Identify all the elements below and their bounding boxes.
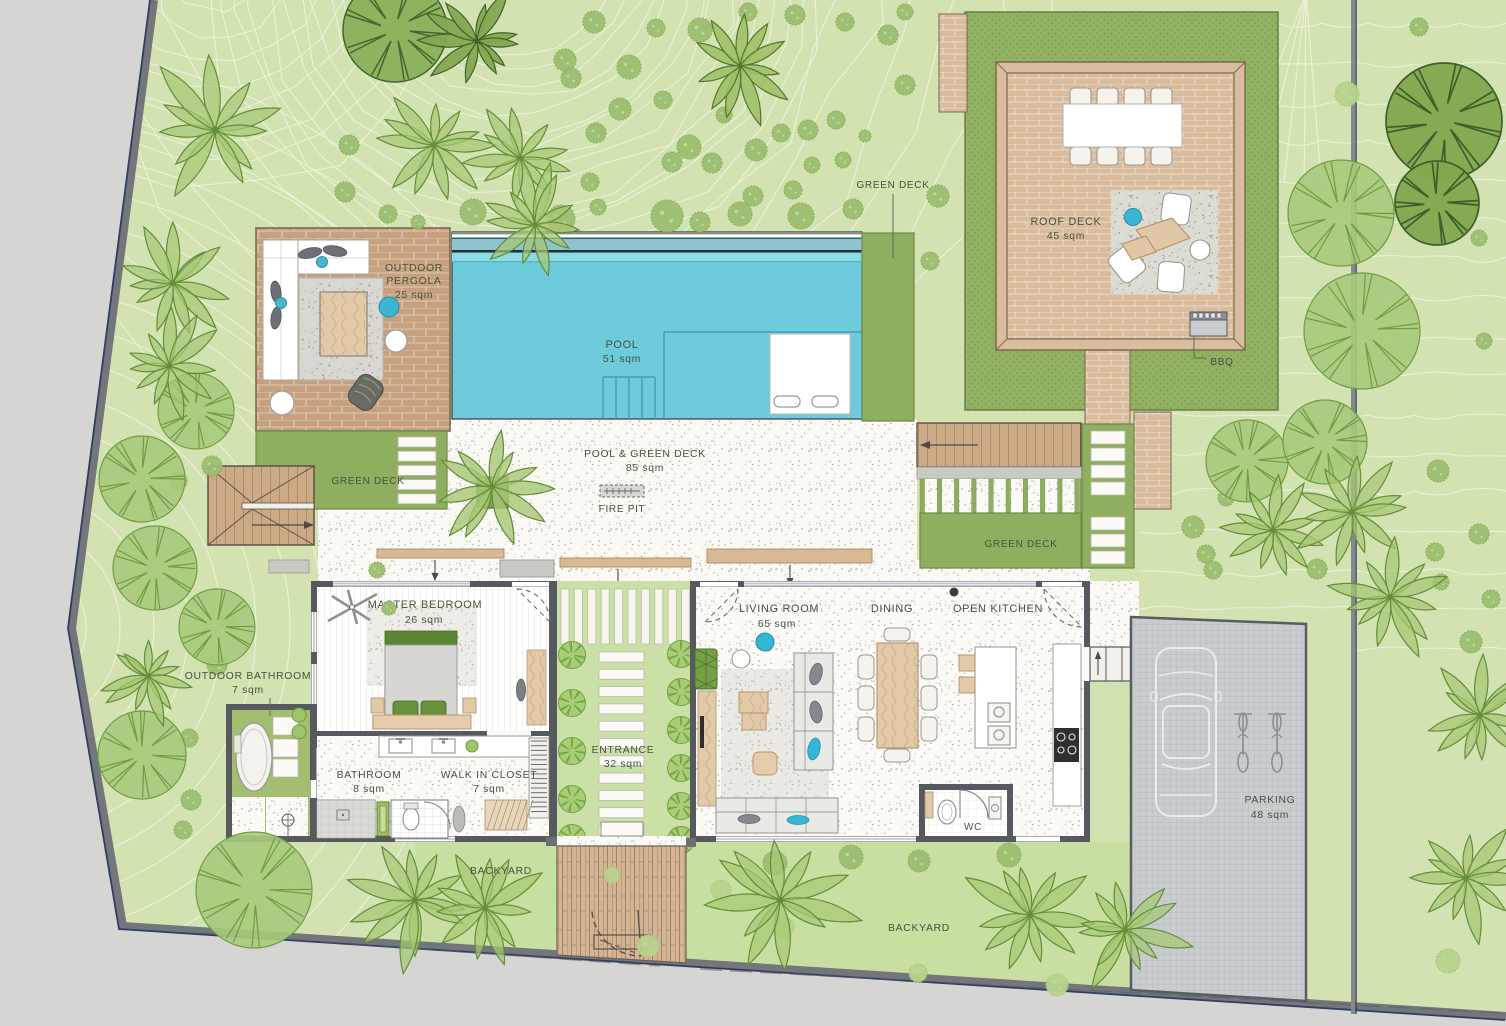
svg-text:DINING: DINING [871,603,913,615]
svg-text:WC: WC [964,822,982,833]
svg-text:48 sqm: 48 sqm [1251,810,1289,821]
svg-text:LIVING ROOM: LIVING ROOM [739,603,819,615]
svg-text:26 sqm: 26 sqm [405,615,443,626]
svg-text:51 sqm: 51 sqm [603,354,641,365]
svg-text:7 sqm: 7 sqm [473,784,505,795]
svg-text:45 sqm: 45 sqm [1047,231,1085,242]
svg-text:BATHROOM: BATHROOM [337,770,402,781]
svg-text:FIRE PIT: FIRE PIT [599,504,646,515]
svg-text:POOL: POOL [605,339,638,351]
svg-text:OUTDOOR BATHROOM: OUTDOOR BATHROOM [185,671,311,682]
svg-text:8 sqm: 8 sqm [353,784,385,795]
svg-text:ROOF DECK: ROOF DECK [1030,216,1101,228]
svg-text:GREEN DECK: GREEN DECK [331,476,404,487]
svg-text:85 sqm: 85 sqm [626,463,664,474]
svg-text:GREEN DECK: GREEN DECK [984,539,1057,550]
svg-text:BACKYARD: BACKYARD [888,923,950,934]
svg-text:25 sqm: 25 sqm [395,290,433,301]
svg-text:BACKYARD: BACKYARD [470,866,532,877]
svg-text:ENTRANCE: ENTRANCE [592,745,655,756]
svg-text:WALK IN CLOSET: WALK IN CLOSET [441,770,538,781]
svg-text:GREEN DECK: GREEN DECK [856,180,929,191]
svg-text:PARKING: PARKING [1245,795,1296,806]
svg-text:7 sqm: 7 sqm [232,685,264,696]
svg-text:OUTDOOR: OUTDOOR [385,263,443,274]
svg-text:BBQ: BBQ [1210,357,1233,368]
svg-text:32 sqm: 32 sqm [604,759,642,770]
svg-text:OPEN KITCHEN: OPEN KITCHEN [953,603,1043,615]
svg-text:POOL & GREEN DECK: POOL & GREEN DECK [584,449,706,460]
svg-text:PERGOLA: PERGOLA [386,276,441,287]
svg-text:65 sqm: 65 sqm [758,619,796,630]
